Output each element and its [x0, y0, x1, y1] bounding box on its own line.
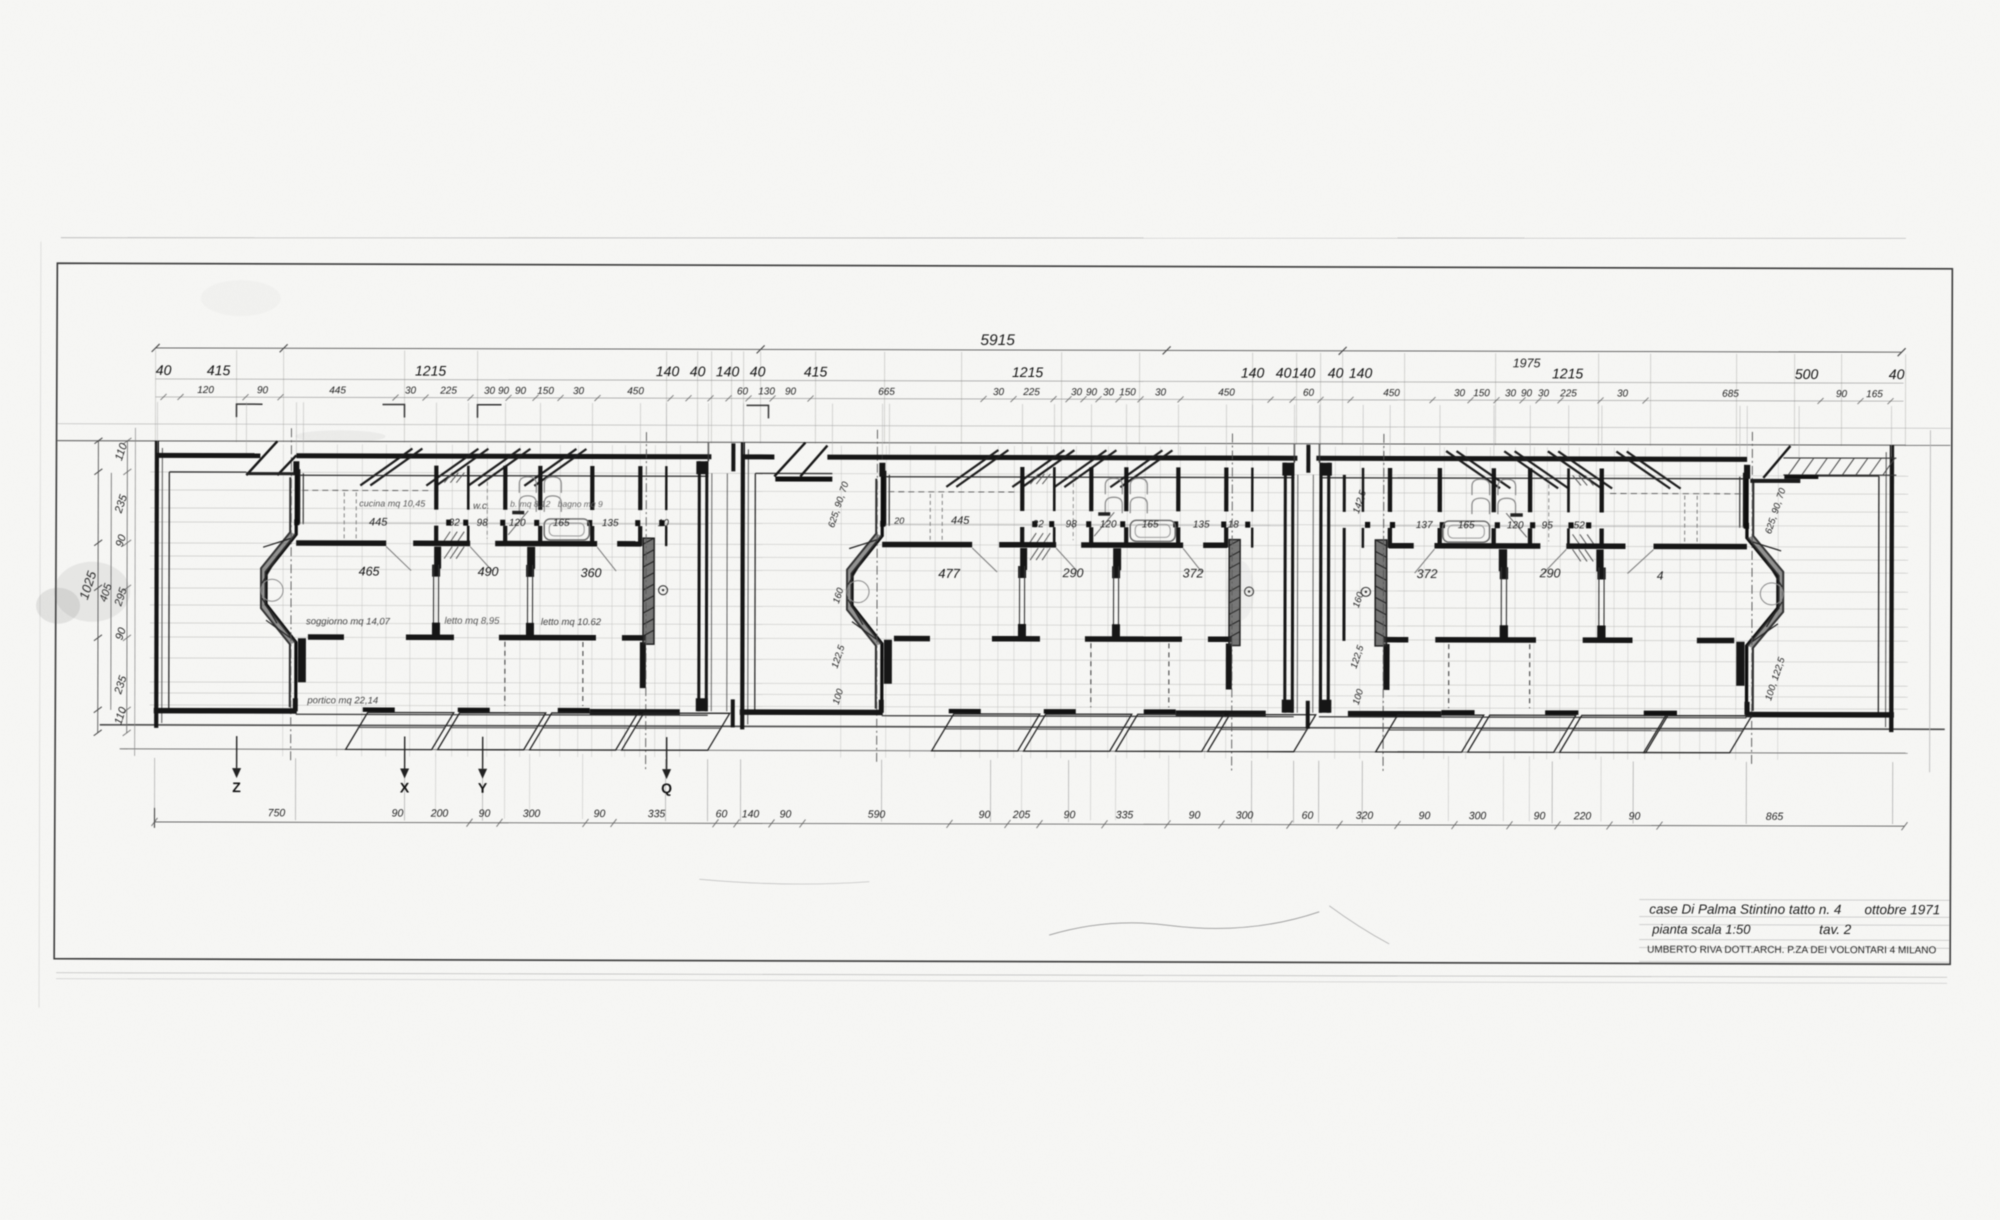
svg-text:Y: Y	[478, 780, 488, 796]
svg-text:letto mq 10.62: letto mq 10.62	[541, 617, 602, 628]
svg-text:20: 20	[893, 516, 904, 526]
svg-text:10: 10	[658, 518, 670, 529]
svg-text:tav. 2: tav. 2	[1819, 922, 1852, 937]
svg-text:UMBERTO RIVA DOTT.ARCH. P.ZA: UMBERTO RIVA DOTT.ARCH. P.ZA DEI VOLONTA…	[1647, 945, 1936, 957]
svg-text:90: 90	[257, 385, 269, 396]
svg-text:60: 60	[1303, 388, 1315, 399]
svg-text:1215: 1215	[1552, 365, 1583, 381]
svg-text:477: 477	[938, 566, 960, 581]
svg-text:90: 90	[1189, 809, 1201, 821]
svg-text:60: 60	[1302, 810, 1314, 822]
svg-text:290: 290	[1539, 566, 1561, 580]
svg-text:90: 90	[515, 386, 527, 397]
svg-text:30: 30	[1103, 387, 1115, 398]
svg-text:4: 4	[1657, 569, 1664, 583]
svg-text:165: 165	[1458, 520, 1475, 531]
svg-text:30: 30	[1617, 388, 1629, 399]
svg-text:90: 90	[392, 808, 404, 820]
svg-text:90: 90	[1836, 389, 1848, 400]
svg-text:140: 140	[1241, 365, 1265, 381]
svg-text:30: 30	[405, 386, 417, 397]
svg-text:865: 865	[1766, 811, 1784, 823]
svg-text:1975: 1975	[1513, 356, 1541, 370]
svg-text:90: 90	[1534, 810, 1546, 822]
svg-text:30: 30	[1505, 388, 1517, 399]
svg-text:445: 445	[369, 516, 388, 528]
svg-text:220: 220	[1573, 810, 1592, 822]
svg-text:225: 225	[439, 386, 457, 397]
svg-text:1215: 1215	[415, 363, 446, 379]
svg-text:30: 30	[573, 386, 585, 397]
svg-text:90: 90	[785, 386, 797, 397]
svg-text:140: 140	[656, 363, 680, 379]
svg-text:165: 165	[553, 518, 570, 529]
svg-text:52: 52	[1574, 520, 1586, 531]
svg-text:90: 90	[1086, 387, 1098, 398]
svg-text:130: 130	[758, 386, 775, 397]
svg-text:90: 90	[594, 808, 606, 820]
svg-text:590: 590	[868, 809, 886, 821]
svg-text:360: 360	[581, 566, 602, 580]
svg-text:30: 30	[484, 386, 496, 397]
svg-text:1215: 1215	[1012, 364, 1043, 380]
svg-text:pianta scala 1:50: pianta scala 1:50	[1651, 922, 1751, 937]
svg-text:40: 40	[156, 362, 172, 378]
svg-text:372: 372	[1183, 566, 1204, 580]
svg-text:290: 290	[1062, 566, 1084, 580]
svg-text:5915: 5915	[980, 332, 1015, 349]
svg-text:300: 300	[1469, 810, 1487, 822]
svg-text:bagno mq 9: bagno mq 9	[558, 499, 603, 509]
svg-text:372: 372	[1417, 567, 1438, 581]
svg-text:135: 135	[602, 518, 619, 529]
svg-text:90: 90	[979, 809, 991, 821]
svg-text:w.c.: w.c.	[473, 501, 489, 512]
svg-text:150: 150	[537, 386, 554, 397]
svg-text:Z: Z	[232, 779, 241, 795]
svg-text:b. mq 8,12: b. mq 8,12	[510, 499, 550, 509]
svg-text:60: 60	[716, 808, 728, 820]
svg-text:Q: Q	[661, 780, 672, 796]
svg-text:140: 140	[716, 363, 740, 379]
svg-text:90: 90	[1419, 810, 1431, 822]
svg-text:X: X	[400, 780, 410, 796]
svg-text:415: 415	[207, 362, 231, 378]
svg-text:137: 137	[1416, 520, 1433, 531]
svg-text:82: 82	[449, 518, 461, 529]
svg-text:30: 30	[1155, 387, 1167, 398]
svg-text:140: 140	[1292, 365, 1316, 381]
svg-text:415: 415	[804, 364, 828, 380]
svg-text:portico mq 22,14: portico mq 22,14	[306, 695, 378, 706]
svg-text:225: 225	[1022, 387, 1040, 398]
svg-text:60: 60	[737, 386, 749, 397]
svg-text:120: 120	[197, 385, 214, 396]
svg-text:90: 90	[479, 808, 491, 820]
svg-text:300: 300	[1236, 810, 1254, 822]
svg-text:150: 150	[1473, 388, 1490, 399]
svg-text:82: 82	[1033, 519, 1045, 530]
svg-text:90: 90	[780, 808, 792, 820]
svg-text:soggiorno mq 14,07: soggiorno mq 14,07	[306, 616, 391, 627]
svg-text:30: 30	[1538, 388, 1550, 399]
svg-text:120: 120	[1100, 519, 1117, 530]
svg-text:465: 465	[359, 564, 380, 578]
svg-text:445: 445	[329, 385, 346, 396]
svg-text:335: 335	[648, 808, 666, 820]
svg-text:letto mq 8,95: letto mq 8,95	[445, 616, 501, 627]
svg-text:490: 490	[478, 565, 499, 579]
svg-text:30: 30	[1454, 388, 1466, 399]
svg-text:90: 90	[498, 386, 510, 397]
svg-text:90: 90	[1064, 809, 1076, 821]
svg-text:335: 335	[1116, 809, 1134, 821]
svg-text:135: 135	[1193, 519, 1210, 530]
svg-text:40: 40	[690, 363, 706, 379]
svg-text:750: 750	[268, 807, 286, 819]
svg-text:98: 98	[1066, 519, 1078, 530]
svg-text:320: 320	[1356, 810, 1374, 822]
svg-text:300: 300	[523, 808, 541, 820]
svg-text:205: 205	[1012, 809, 1031, 821]
svg-text:ottobre 1971: ottobre 1971	[1864, 902, 1940, 917]
svg-text:95: 95	[1542, 520, 1554, 531]
svg-text:30: 30	[993, 387, 1005, 398]
svg-text:445: 445	[951, 515, 970, 527]
svg-text:140: 140	[742, 808, 760, 820]
svg-text:225: 225	[1559, 388, 1577, 399]
svg-text:18: 18	[1228, 520, 1240, 531]
svg-text:165: 165	[1866, 389, 1883, 400]
svg-text:30: 30	[1071, 387, 1083, 398]
svg-text:40: 40	[1276, 365, 1292, 381]
svg-text:120: 120	[509, 518, 526, 529]
svg-text:40: 40	[1889, 366, 1905, 382]
svg-text:40: 40	[1328, 365, 1344, 381]
svg-text:90: 90	[1629, 811, 1641, 823]
svg-text:450: 450	[1383, 388, 1400, 399]
svg-text:40: 40	[750, 363, 766, 379]
svg-text:165: 165	[1142, 519, 1159, 530]
svg-text:140: 140	[1349, 365, 1373, 381]
svg-text:665: 665	[878, 387, 895, 398]
svg-text:120: 120	[1507, 520, 1524, 531]
svg-text:case Di Palma Stintino tatto: case Di Palma Stintino tatto n. 4	[1649, 902, 1841, 917]
svg-text:90: 90	[1521, 388, 1533, 399]
svg-text:98: 98	[477, 518, 489, 529]
svg-text:685: 685	[1722, 389, 1739, 400]
svg-text:200: 200	[430, 808, 449, 820]
svg-text:cucina mq 10,45: cucina mq 10,45	[359, 498, 426, 508]
svg-text:500: 500	[1795, 366, 1819, 382]
svg-text:450: 450	[627, 386, 644, 397]
svg-text:450: 450	[1218, 388, 1235, 399]
